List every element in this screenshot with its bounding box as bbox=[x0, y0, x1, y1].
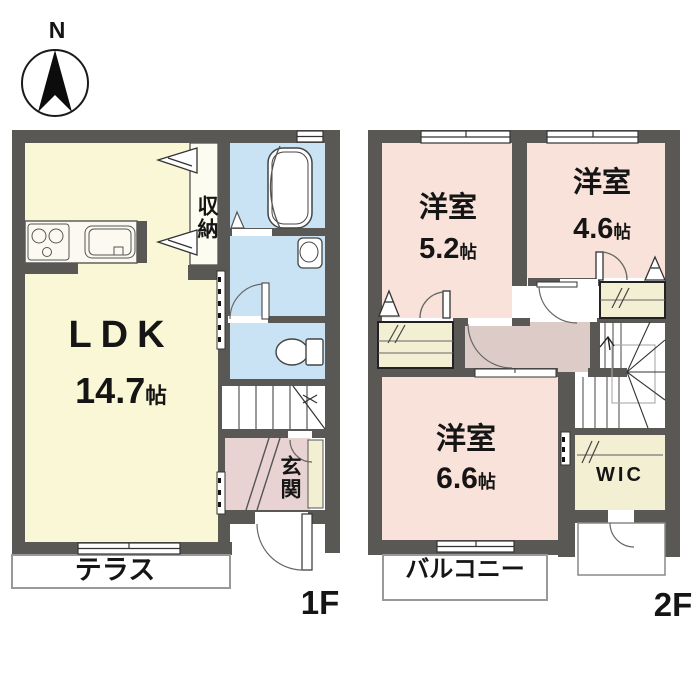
balcony-label: バルコニー bbox=[390, 557, 540, 582]
compass-label: N bbox=[42, 18, 72, 42]
compass bbox=[22, 50, 88, 116]
closet-bedroom1 bbox=[378, 322, 453, 368]
room-bedroom3 bbox=[382, 377, 558, 540]
hallway-2f bbox=[465, 322, 592, 372]
bedroom3-label: 洋室 bbox=[398, 424, 534, 456]
bedroom2-size-label: 4.6帖 bbox=[540, 214, 664, 244]
wic-door-opening bbox=[608, 510, 634, 523]
wic-label: WIC bbox=[590, 465, 650, 486]
terrace-label: テラス bbox=[30, 556, 200, 584]
floor2-label: 2F bbox=[643, 588, 700, 623]
bedroom2-label: 洋室 bbox=[540, 168, 664, 198]
floorplan-canvas: { "title": "apartment-floorplan", "compa… bbox=[0, 0, 700, 700]
front-door-opening bbox=[255, 512, 308, 524]
bath-sliding-opening bbox=[232, 229, 272, 236]
front-door-leaf bbox=[302, 514, 312, 570]
ldk-label: LDK bbox=[40, 316, 202, 356]
bedroom1-size-label: 5.2帖 bbox=[386, 234, 510, 264]
closet-bedroom2 bbox=[600, 282, 665, 318]
shoe-cabinet bbox=[308, 440, 323, 508]
entrance-hall-door-opening bbox=[288, 431, 312, 438]
area-below-wic bbox=[578, 523, 665, 575]
hall-vestibule bbox=[527, 286, 597, 322]
storage-label: 収納 bbox=[191, 172, 217, 264]
north-arrow-icon bbox=[38, 50, 72, 112]
wic-sliding-strip bbox=[561, 432, 570, 465]
front-door-arc bbox=[257, 524, 303, 570]
sliding-door-washroom bbox=[217, 271, 225, 349]
washroom-door-leaf bbox=[262, 283, 269, 319]
bedroom3-sliding-door bbox=[475, 369, 556, 377]
floor1-label: 1F bbox=[290, 586, 350, 621]
floor1-plan bbox=[12, 130, 340, 588]
bedroom3-size-label: 6.6帖 bbox=[398, 463, 534, 495]
ldk-size-label: 14.7帖 bbox=[35, 372, 207, 410]
kitchen-counter bbox=[25, 221, 137, 263]
vestibule-door-leaf bbox=[537, 282, 577, 287]
sliding-door-entrance bbox=[217, 472, 225, 514]
bedroom1-door-opening bbox=[468, 318, 512, 326]
toilet-fixture bbox=[276, 339, 323, 365]
bedroom1-label: 洋室 bbox=[386, 193, 510, 223]
entrance-label: 玄関 bbox=[272, 448, 300, 508]
washbasin bbox=[298, 238, 322, 268]
